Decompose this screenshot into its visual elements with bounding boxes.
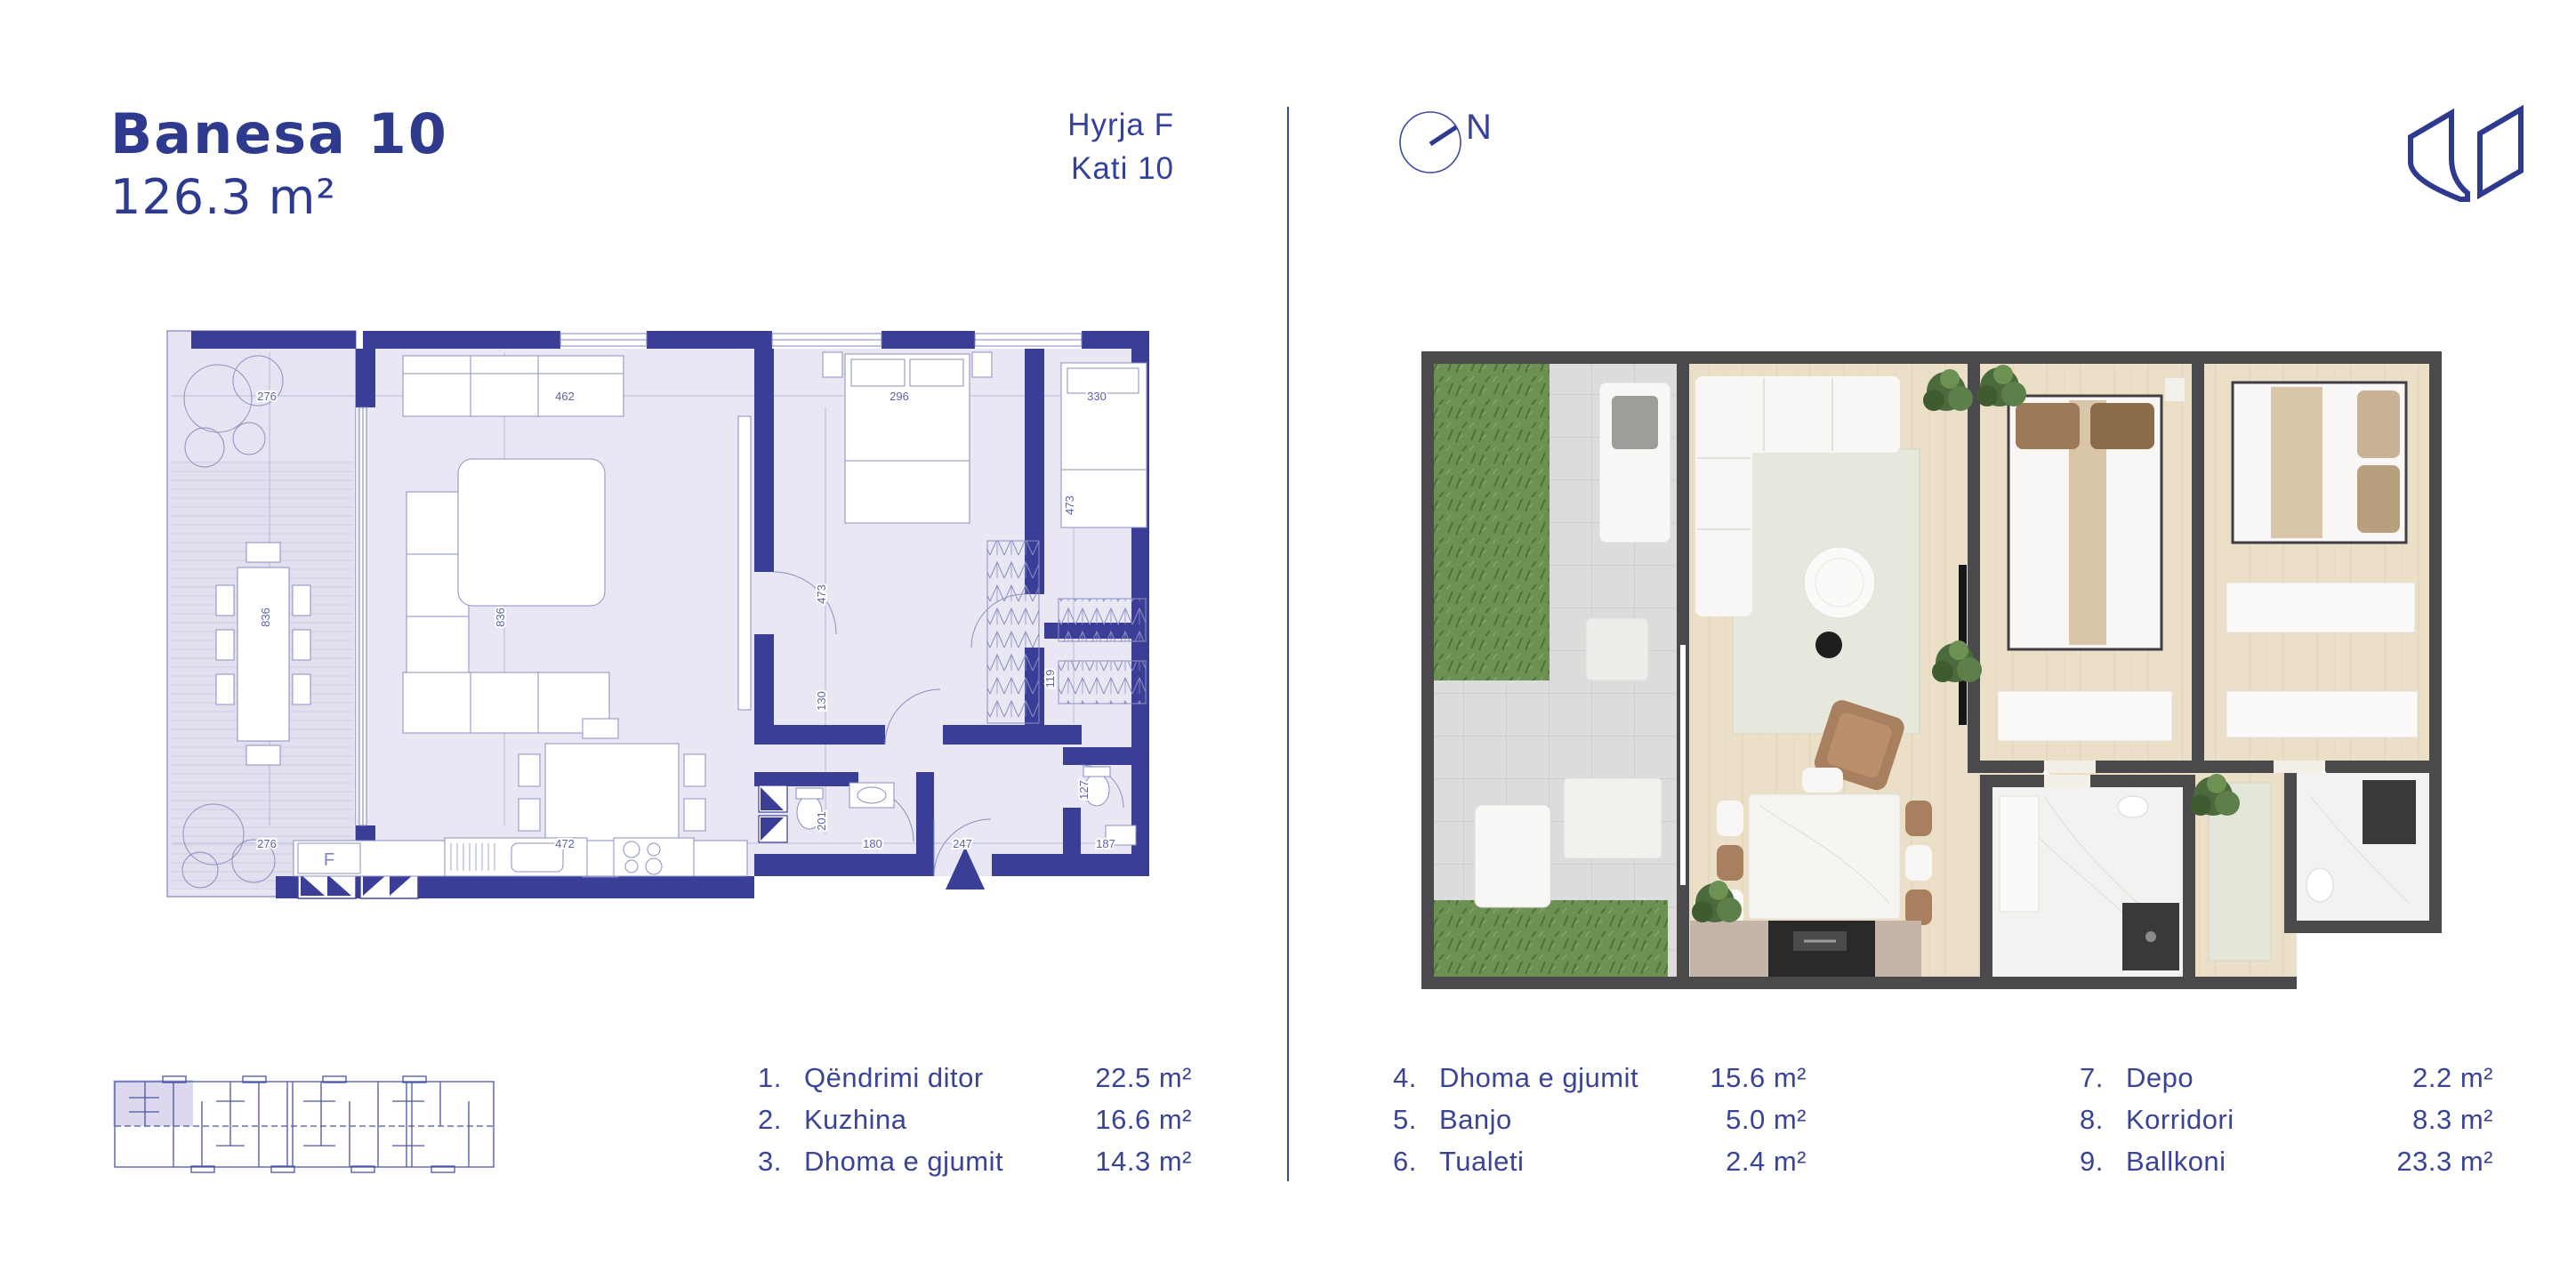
dim-label: 473	[1063, 495, 1076, 515]
room-number: 2.	[758, 1099, 804, 1140]
kitchen-counter-icon: F	[294, 838, 747, 876]
legend-row: 5. Banjo 5.0 m²	[1393, 1099, 1807, 1140]
dim-label: 276	[257, 837, 277, 850]
floor-label: Kati 10	[925, 147, 1174, 190]
room-area: 8.3 m²	[2412, 1099, 2493, 1140]
bed-3-icon	[823, 352, 992, 523]
room-number: 1.	[758, 1057, 804, 1099]
dim-label: 201	[815, 811, 828, 831]
render-bathroom	[1980, 775, 2195, 977]
vertical-divider	[1287, 107, 1289, 1181]
dim-label: 127	[1077, 780, 1091, 800]
room-number: 7.	[2080, 1057, 2126, 1099]
compass-n-label: N	[1466, 108, 1492, 147]
dim-label: 247	[953, 837, 972, 850]
dim-label: 276	[257, 390, 277, 403]
room-name: Tualeti	[1439, 1140, 1726, 1182]
room-name: Qëndrimi ditor	[804, 1057, 1095, 1099]
dim-label: 473	[815, 584, 828, 604]
legend-row: 3. Dhoma e gjumit 14.3 m²	[758, 1140, 1192, 1182]
room-name: Depo	[2126, 1057, 2412, 1099]
dim-label: 836	[259, 608, 272, 627]
room-name: Banjo	[1439, 1099, 1726, 1140]
legend-row: 7. Depo 2.2 m²	[2080, 1057, 2493, 1099]
dim-label: 180	[863, 837, 882, 850]
3d-render	[1421, 351, 2442, 989]
brand-logo	[2402, 103, 2544, 205]
legend-column-3: 7. Depo 2.2 m² 8. Korridori 8.3 m² 9. Ba…	[2080, 1057, 2493, 1182]
building-key-plan	[111, 1075, 503, 1181]
legend-row: 4. Dhoma e gjumit 15.6 m²	[1393, 1057, 1807, 1099]
entrance-floor-block: Hyrja F Kati 10	[925, 103, 1174, 190]
legend-row: 2. Kuzhina 16.6 m²	[758, 1099, 1192, 1140]
north-compass-icon: N	[1393, 100, 1535, 197]
render-bedroom-right	[2204, 364, 2429, 761]
dim-label: 462	[555, 390, 575, 403]
fridge-label: F	[324, 850, 334, 870]
room-name: Korridori	[2126, 1099, 2412, 1140]
render-notch	[2297, 933, 2442, 989]
unit-highlight	[113, 1080, 193, 1126]
room-area: 16.6 m²	[1095, 1099, 1192, 1140]
2d-floorplan: F	[165, 327, 1152, 943]
page-title: Banesa 10	[110, 105, 448, 164]
room-area: 2.2 m²	[2412, 1057, 2493, 1099]
entrance-label: Hyrja F	[925, 103, 1174, 147]
room-name: Ballkoni	[2126, 1140, 2396, 1182]
dim-label: 119	[1043, 670, 1057, 688]
total-area: 126.3 m²	[110, 171, 448, 224]
dim-label: 296	[890, 390, 909, 403]
room-name: Dhoma e gjumit	[804, 1140, 1095, 1182]
dim-label: 836	[494, 608, 507, 627]
room-area: 5.0 m²	[1726, 1099, 1807, 1140]
dim-label: 130	[815, 691, 828, 711]
render-balcony	[1434, 364, 1677, 977]
room-number: 9.	[2080, 1140, 2126, 1182]
floorplan-sheet: { "header": { "title": "Banesa 10", "are…	[0, 0, 2576, 1288]
room-name: Dhoma e gjumit	[1439, 1057, 1710, 1099]
room-area: 15.6 m²	[1710, 1057, 1807, 1099]
room-number: 6.	[1393, 1140, 1439, 1182]
legend-column-2: 4. Dhoma e gjumit 15.6 m² 5. Banjo 5.0 m…	[1393, 1057, 1807, 1182]
dim-label: 187	[1096, 837, 1115, 850]
legend-row: 9. Ballkoni 23.3 m²	[2080, 1140, 2493, 1182]
room-name: Kuzhina	[804, 1099, 1095, 1140]
room-number: 4.	[1393, 1057, 1439, 1099]
room-area: 23.3 m²	[2396, 1140, 2493, 1182]
legend-row: 8. Korridori 8.3 m²	[2080, 1099, 2493, 1140]
room-number: 5.	[1393, 1099, 1439, 1140]
room-number: 3.	[758, 1140, 804, 1182]
room-area: 22.5 m²	[1095, 1057, 1192, 1099]
room-area: 2.4 m²	[1726, 1140, 1807, 1182]
dim-label: 472	[555, 837, 575, 850]
render-toilet	[2284, 773, 2442, 933]
title-block: Banesa 10 126.3 m²	[110, 105, 448, 224]
legend-row: 6. Tualeti 2.4 m²	[1393, 1140, 1807, 1182]
room-area: 14.3 m²	[1095, 1140, 1192, 1182]
legend-row: 1. Qëndrimi ditor 22.5 m²	[758, 1057, 1192, 1099]
room-number: 8.	[2080, 1099, 2126, 1140]
legend-column-1: 1. Qëndrimi ditor 22.5 m² 2. Kuzhina 16.…	[758, 1057, 1192, 1182]
dim-label: 330	[1087, 390, 1107, 403]
render-bedroom-mid	[1980, 364, 2204, 761]
